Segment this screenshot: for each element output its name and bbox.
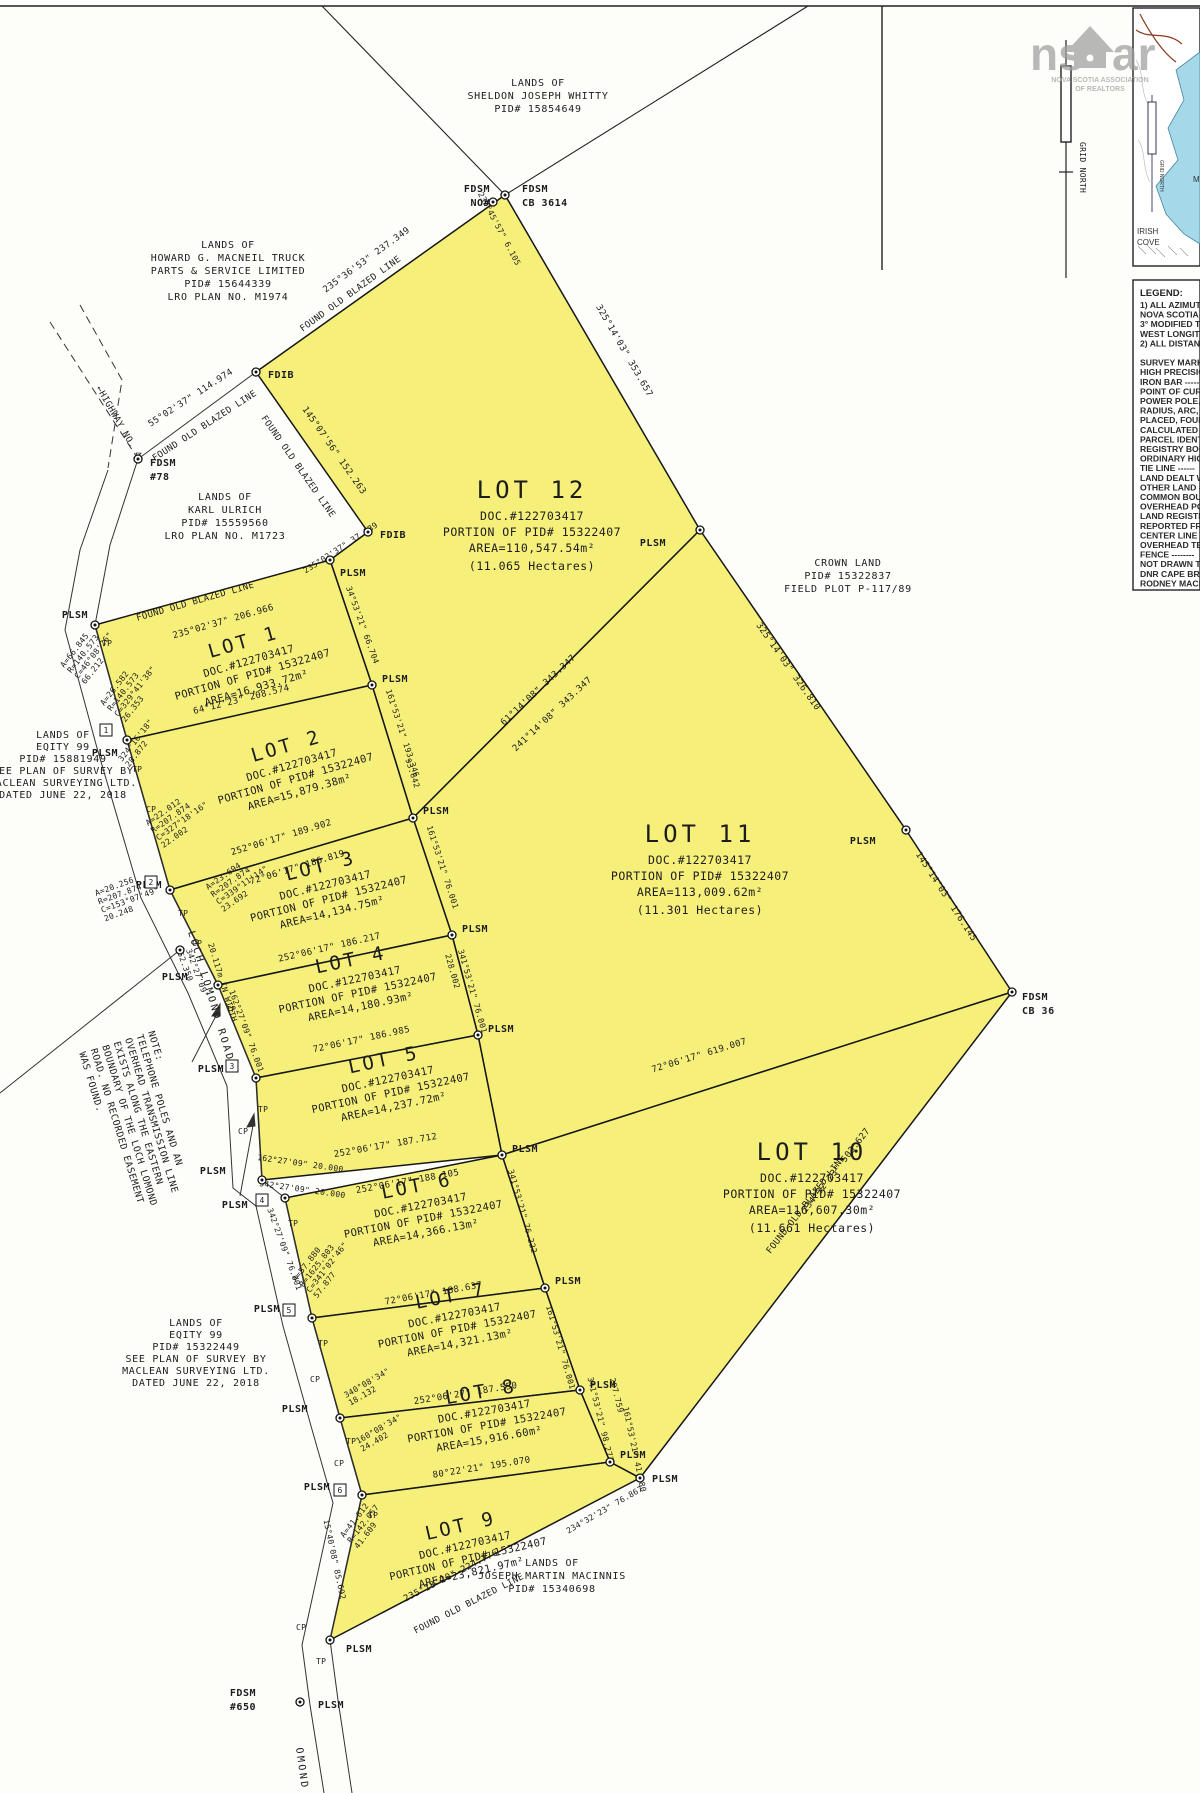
svg-text:PLSM: PLSM (590, 1380, 616, 1391)
legend-line: OVERHEAD POW (1140, 502, 1200, 512)
lot-doc: DOC.#122703417 (648, 853, 752, 867)
svg-text:PID# 15644339: PID# 15644339 (184, 279, 271, 290)
sheet-border (0, 6, 1200, 270)
lot-area: AREA=110,547.54m² (469, 541, 595, 555)
lot-hectares: (11.065 Hectares) (469, 559, 595, 573)
svg-text:CP: CP (296, 1623, 306, 1632)
svg-text:CROWN LAND: CROWN LAND (814, 558, 881, 569)
lot-title: LOT 11 (645, 820, 756, 848)
svg-text:TP: TP (346, 1437, 356, 1446)
cp-label: CP (146, 805, 156, 814)
svg-text:MACLEAN SURVEYING LTD.: MACLEAN SURVEYING LTD. (0, 778, 137, 789)
legend-line: ORDINARY HIGH (1140, 454, 1200, 464)
legend-line: 1) ALL AZIMUTHS (1140, 300, 1200, 310)
svg-text:PLSM: PLSM (318, 1700, 344, 1711)
owner-macneil: LANDS OF HOWARD G. MACNEIL TRUCK PARTS &… (151, 240, 306, 303)
survey-plan-drawing: LOT 1 DOC.#122703417 PORTION OF PID# 153… (0, 0, 1200, 1793)
svg-text:5: 5 (286, 1306, 291, 1315)
svg-text:PLSM: PLSM (254, 1304, 280, 1315)
irish-cove-label: COVE (1137, 238, 1160, 247)
easement-note: NOTE: TELEPHONE POLES AND AN OVERHEAD TR… (76, 1030, 204, 1215)
svg-text:DATED JUNE 22, 2018: DATED JUNE 22, 2018 (0, 790, 127, 801)
svg-text:HOWARD G. MACNEIL TRUCK: HOWARD G. MACNEIL TRUCK (151, 253, 306, 264)
svg-text:PLSM: PLSM (652, 1474, 678, 1485)
nsar-caption: NOVA SCOTIA ASSOCIATION (1051, 77, 1148, 84)
svg-text:LANDS OF: LANDS OF (198, 492, 252, 503)
svg-text:EQITY 99: EQITY 99 (36, 742, 90, 753)
plsm-label: PLSM (340, 568, 366, 579)
svg-text:PLSM: PLSM (346, 1644, 372, 1655)
fdsm-78-label: #78 (150, 472, 170, 483)
legend-line: WEST LONGITUD (1140, 329, 1200, 339)
legend-line: LAND DEALT WIT (1140, 473, 1200, 483)
legend-line: CENTER LINE -- (1140, 530, 1200, 540)
svg-text:PLSM: PLSM (92, 748, 118, 759)
svg-text:TP: TP (226, 1005, 236, 1014)
highway-4-label: ←HIGHWAY NO. 4 (93, 385, 142, 461)
legend-line: OVERHEAD TELE (1140, 540, 1200, 550)
irish-cove-label: IRISH (1137, 227, 1159, 236)
svg-text:LANDS OF: LANDS OF (511, 78, 565, 89)
lot-title: LOT 12 (477, 476, 588, 504)
owner-whitty: LANDS OF SHELDON JOSEPH WHITTY PID# 1585… (467, 78, 608, 115)
svg-text:KARL ULRICH: KARL ULRICH (188, 505, 262, 516)
svg-text:PID# 15340698: PID# 15340698 (508, 1584, 595, 1595)
svg-text:TP: TP (178, 909, 188, 918)
fdsm-78-label: FDSM (150, 458, 176, 469)
survey-plan-sheet: LOT 1 DOC.#122703417 PORTION OF PID# 153… (0, 0, 1200, 1793)
fdib-label: FDIB (268, 370, 294, 381)
svg-text:CP: CP (334, 1459, 344, 1468)
svg-text:CP: CP (238, 1127, 248, 1136)
svg-text:PID# 15559560: PID# 15559560 (181, 518, 268, 529)
lot-hectares: (11.661 Hectares) (749, 1221, 875, 1235)
svg-text:JOSEPH MARTIN MACINNIS: JOSEPH MARTIN MACINNIS (478, 1571, 626, 1582)
svg-text:FIELD PLOT P-117/89: FIELD PLOT P-117/89 (784, 584, 912, 595)
svg-text:LANDS OF: LANDS OF (36, 730, 90, 741)
svg-text:SEE PLAN OF SURVEY BY: SEE PLAN OF SURVEY BY (0, 766, 134, 777)
svg-text:LANDS OF: LANDS OF (169, 1318, 223, 1329)
bearing-label: FOUND OLD BLAZED LINE (151, 389, 259, 464)
svg-text:EQITY 99: EQITY 99 (169, 1330, 223, 1341)
svg-text:TP: TP (318, 1339, 328, 1348)
svg-text:PLSM: PLSM (512, 1144, 538, 1155)
svg-text:6: 6 (337, 1486, 342, 1495)
legend-line: FENCE -------- (1140, 550, 1195, 560)
legend-line: DNR CAPE BRET (1140, 569, 1200, 579)
fdsm-label: FDSM (464, 184, 490, 195)
legend-line: HIGH PRECISION (1140, 367, 1200, 377)
svg-text:PARTS & SERVICE LIMITED: PARTS & SERVICE LIMITED (151, 266, 306, 277)
grid-north-label: GRID NORTH (1078, 142, 1087, 193)
fdsm-label: FDSM (522, 184, 548, 195)
svg-text:PLSM: PLSM (282, 1404, 308, 1415)
svg-text:SEE PLAN OF SURVEY BY: SEE PLAN OF SURVEY BY (125, 1354, 266, 1365)
svg-text:CP: CP (310, 1375, 320, 1384)
nsar-caption: OF REALTORS (1075, 86, 1125, 93)
fdsm-650-label: #650 (230, 1702, 256, 1713)
legend-line: TIE LINE ------ (1140, 463, 1195, 473)
legend-line: 3° MODIFIED TR (1140, 319, 1200, 329)
fdsm-cb36-label: CB 36 (1022, 1006, 1055, 1017)
legend-line: POWER POLE, TE (1140, 396, 1200, 406)
svg-text:PLSM: PLSM (620, 1450, 646, 1461)
owner-eqity-99-south: LANDS OF EQITY 99 PID# 15322449 SEE PLAN… (122, 1318, 270, 1389)
svg-text:TP: TP (316, 1657, 326, 1666)
lot-doc: DOC.#122703417 (760, 1171, 864, 1185)
svg-text:PLSM: PLSM (555, 1276, 581, 1287)
lot-pid: PORTION OF PID# 15322407 (443, 525, 621, 539)
svg-text:LANDS OF: LANDS OF (201, 240, 255, 251)
svg-text:TP: TP (132, 765, 142, 774)
legend-line: LAND REGISTRY (1140, 511, 1200, 521)
svg-text:PID# 15322449: PID# 15322449 (152, 1342, 239, 1353)
svg-text:PLSM: PLSM (198, 1064, 224, 1075)
inset-partial-label: M (1193, 175, 1200, 184)
svg-text:PLSM: PLSM (488, 1024, 514, 1035)
svg-text:4: 4 (259, 1196, 264, 1205)
svg-text:1: 1 (103, 726, 108, 735)
svg-text:LANDS OF: LANDS OF (525, 1558, 579, 1569)
legend-line: COMMON BOUND (1140, 492, 1200, 502)
road-label-partial: OMOND (293, 1747, 310, 1791)
svg-text:TP: TP (258, 1105, 268, 1114)
svg-text:CP: CP (192, 939, 202, 948)
svg-text:PID# 15322837: PID# 15322837 (804, 571, 891, 582)
svg-text:PLSM: PLSM (382, 674, 408, 685)
legend-line: PLACED, FOUND, (1140, 415, 1200, 425)
svg-text:PLSM: PLSM (304, 1482, 330, 1493)
svg-text:PLSM: PLSM (162, 972, 188, 983)
owner-ulrich: LANDS OF KARL ULRICH PID# 15559560 LRO P… (165, 492, 286, 542)
svg-text:PID# 15854649: PID# 15854649 (494, 104, 581, 115)
legend-line: IRON BAR ----- (1140, 377, 1199, 387)
legend-title: LEGEND: (1140, 288, 1183, 299)
legend-line: RODNEY MACLE (1140, 578, 1200, 588)
svg-text:PLSM: PLSM (850, 836, 876, 847)
owner-eqity-99-north: LANDS OF EQITY 99 PID# 15881949 SEE PLAN… (0, 730, 137, 801)
lot-hectares: (11.301 Hectares) (637, 903, 763, 917)
svg-text:PLSM: PLSM (640, 538, 666, 549)
fdib-label: FDIB (380, 530, 406, 541)
svg-text:TP: TP (288, 1219, 298, 1228)
fdsm-label: CB 3614 (522, 198, 568, 209)
inset-grid-north-label: GRID NORTH (1158, 160, 1164, 192)
svg-text:PLSM: PLSM (423, 806, 449, 817)
svg-text:PLSM: PLSM (62, 610, 88, 621)
legend-line: SURVEY MARKER (1140, 358, 1200, 368)
fdsm-label: NO# (470, 198, 490, 209)
owner-crown-land: CROWN LAND PID# 15322837 FIELD PLOT P-11… (784, 558, 912, 595)
lot-area: AREA=113,009.62m² (637, 885, 763, 899)
legend-line: REGISTRY BOOK (1140, 444, 1200, 454)
legend-line: NOVA SCOTIA H (1140, 310, 1200, 320)
nsar-watermark: ns ar NOVA SCOTIA ASSOCIATION OF REALTOR… (1030, 26, 1156, 93)
lot-pid: PORTION OF PID# 15322407 (611, 869, 789, 883)
legend-line: RADIUS, ARC, CH (1140, 406, 1200, 416)
legend-line: PARCEL IDENTIFI (1140, 434, 1200, 444)
tp-label: TP (102, 639, 112, 648)
legend-line: OTHER LAND -- (1140, 482, 1200, 492)
lot-doc: DOC.#122703417 (480, 509, 584, 523)
svg-text:PLSM: PLSM (462, 924, 488, 935)
svg-text:PLSM: PLSM (200, 1166, 226, 1177)
fdsm-cb36-label: FDSM (1022, 992, 1048, 1003)
svg-text:TP: TP (368, 1511, 378, 1520)
legend-line: NOT DRAWN TO (1140, 559, 1200, 569)
legend-line: POINT OF CURVA (1140, 386, 1200, 396)
legend-box: LEGEND: 1) ALL AZIMUTHS NOVA SCOTIA H 3°… (1133, 280, 1200, 590)
svg-text:LRO PLAN NO. M1723: LRO PLAN NO. M1723 (165, 531, 286, 542)
nsar-logo-text: ar (1112, 28, 1156, 80)
svg-text:MACLEAN SURVEYING LTD.: MACLEAN SURVEYING LTD. (122, 1366, 270, 1377)
legend-line: REPORTED FROM (1140, 521, 1200, 531)
legend-line: CALCULATED (1140, 425, 1198, 435)
svg-text:2: 2 (148, 878, 153, 887)
svg-text:3: 3 (229, 1062, 234, 1071)
svg-text:SHELDON JOSEPH WHITTY: SHELDON JOSEPH WHITTY (467, 91, 608, 102)
svg-text:LRO PLAN NO. M1974: LRO PLAN NO. M1974 (168, 292, 289, 303)
fdsm-650-label: FDSM (230, 1688, 256, 1699)
svg-text:DATED JUNE 22, 2018: DATED JUNE 22, 2018 (132, 1378, 260, 1389)
svg-text:PLSM: PLSM (222, 1200, 248, 1211)
legend-line: 2) ALL DISTANCE (1140, 338, 1200, 348)
